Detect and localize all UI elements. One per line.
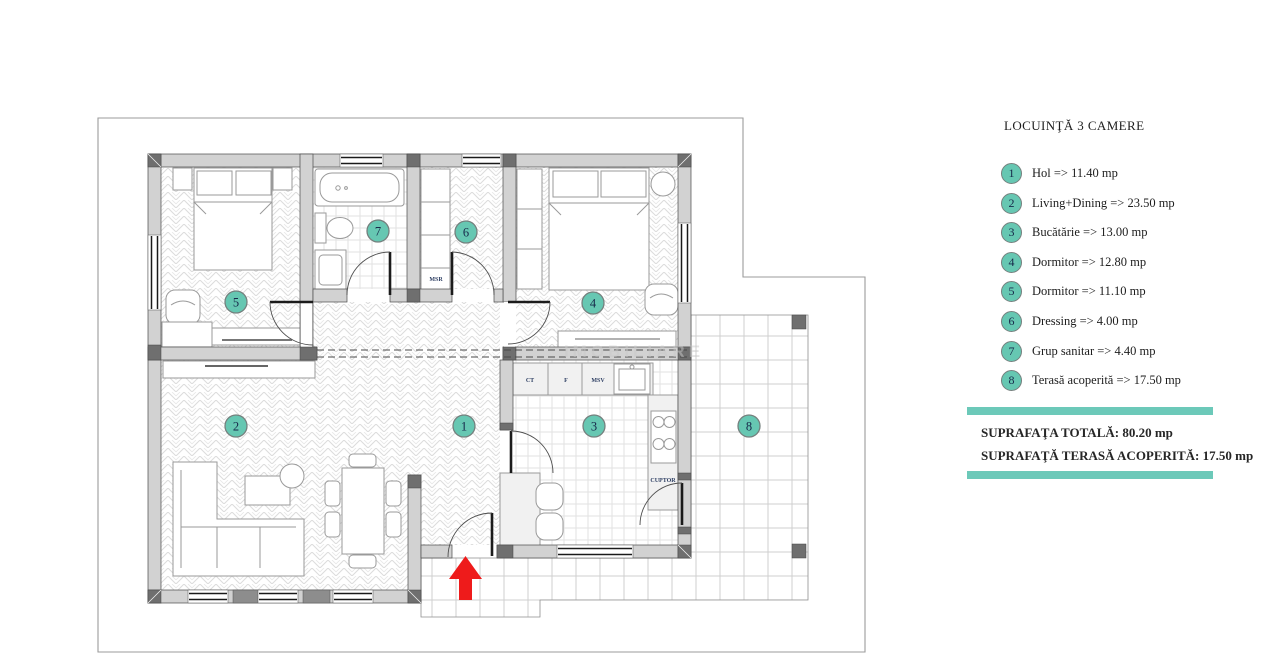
room-badge-6: 6: [455, 221, 477, 243]
chair: [349, 454, 376, 467]
wall-bath-bottom-b: [390, 289, 452, 302]
room-number-badge: 6: [1001, 311, 1022, 332]
room-number-badge: 5: [1001, 281, 1022, 302]
wardrobe: [421, 235, 450, 268]
pillow: [553, 171, 598, 197]
chair: [349, 555, 376, 568]
bar-counter: [500, 473, 540, 546]
svg-text:1: 1: [461, 420, 467, 434]
dining-table: [342, 468, 384, 554]
legend-item-label: Dressing => 4.00 mp: [1032, 314, 1138, 329]
window: [333, 590, 373, 603]
dressing-furniture: MSR: [421, 169, 450, 300]
ct-label: CT: [526, 378, 534, 384]
wall-entry-stub: [421, 545, 452, 558]
wall-bath-dressing: [407, 154, 420, 302]
armchair: [166, 290, 200, 324]
watermark: IMOBILIARE: [564, 342, 704, 361]
room-badge-8: 8: [738, 415, 760, 437]
room-number-badge: 2: [1001, 193, 1022, 214]
wall-porch: [408, 475, 421, 603]
floor-plan-page: MSR CT F MSV CUPTOR: [0, 0, 1270, 671]
window: [258, 590, 298, 603]
legend-items: 1 Hol => 11.40 mp 2 Living+Dining => 23.…: [967, 163, 1181, 400]
wall-dressing-room4: [503, 154, 516, 302]
pillow: [236, 171, 271, 195]
svg-text:2: 2: [233, 420, 239, 434]
round-table: [280, 464, 304, 488]
room-badge-3: 3: [583, 415, 605, 437]
separator-bar-bottom: [967, 471, 1213, 479]
room-number-badge: 1: [1001, 163, 1022, 184]
pillow: [601, 171, 646, 197]
open-span-floor: [317, 347, 408, 360]
chair: [386, 481, 401, 506]
legend-panel: LOCUINŢĂ 3 CAMERE 1 Hol => 11.40 mp 2 Li…: [967, 112, 1213, 492]
door-opening: [301, 302, 312, 347]
svg-text:4: 4: [590, 297, 597, 311]
svg-text:3: 3: [591, 420, 597, 434]
room-badge-7: 7: [367, 220, 389, 242]
legend-item-dormitor-5: 5 Dormitor => 11.10 mp: [967, 281, 1181, 302]
legend-item-dormitor-4: 4 Dormitor => 12.80 mp: [967, 252, 1181, 273]
terrace-pillar-bottom: [792, 544, 806, 558]
room-number-badge: 4: [1001, 252, 1022, 273]
window: [557, 545, 633, 558]
legend-item-bucatarie: 3 Bucătărie => 13.00 mp: [967, 222, 1181, 243]
wardrobe: [421, 169, 450, 202]
nightstand: [173, 168, 192, 190]
legend-item-terasa: 8 Terasă acoperită => 17.50 mp: [967, 370, 1181, 391]
legend-item-label: Bucătărie => 13.00 mp: [1032, 225, 1147, 240]
window: [462, 154, 501, 167]
legend-item-grup-sanitar: 7 Grup sanitar => 4.40 mp: [967, 341, 1181, 362]
armchair: [645, 284, 678, 315]
legend-item-hol: 1 Hol => 11.40 mp: [967, 163, 1181, 184]
wall-bath-bottom-a: [313, 289, 347, 302]
legend-item-living: 2 Living+Dining => 23.50 mp: [967, 193, 1181, 214]
svg-text:8: 8: [746, 420, 752, 434]
legend-item-label: Dormitor => 11.10 mp: [1032, 284, 1146, 299]
wall-left: [148, 154, 161, 603]
sideboard: [212, 328, 310, 345]
svg-text:6: 6: [463, 226, 469, 240]
pillow: [197, 171, 232, 195]
room-badge-5: 5: [225, 291, 247, 313]
f-label: F: [564, 378, 568, 384]
terrace-area-line: SUPRAFAŢĂ TERASĂ ACOPERITĂ: 17.50 mp: [981, 444, 1253, 467]
side-table: [651, 172, 675, 196]
window: [148, 235, 161, 310]
chair: [386, 512, 401, 537]
bar-stool: [536, 483, 563, 510]
legend-item-label: Grup sanitar => 4.40 mp: [1032, 344, 1155, 359]
window: [340, 154, 383, 167]
room-number-badge: 7: [1001, 341, 1022, 362]
legend-item-label: Hol => 11.40 mp: [1032, 166, 1118, 181]
wardrobe: [517, 169, 542, 209]
window: [188, 590, 228, 603]
totals-block: SUPRAFAŢA TOTALĂ: 80.20 mp SUPRAFAŢĂ TER…: [981, 421, 1253, 467]
room-badge-2: 2: [225, 415, 247, 437]
wall-bath-bottom-c: [494, 289, 503, 302]
terrace-pillar-top: [792, 315, 806, 329]
tv-sideboard: [163, 361, 315, 378]
cuptor-label: CUPTOR: [650, 478, 676, 484]
msr-label: MSR: [429, 277, 443, 283]
room-badge-1: 1: [453, 415, 475, 437]
total-area-line: SUPRAFAŢA TOTALĂ: 80.20 mp: [981, 421, 1253, 444]
wall-a: [148, 347, 317, 360]
bathtub: [315, 169, 404, 206]
toilet-tank: [315, 213, 326, 243]
legend-item-label: Terasă acoperită => 17.50 mp: [1032, 373, 1181, 388]
wardrobe: [517, 209, 542, 249]
svg-text:7: 7: [375, 225, 381, 239]
nightstand: [273, 168, 292, 190]
separator-bar-top: [967, 407, 1213, 415]
legend-title: LOCUINŢĂ 3 CAMERE: [1004, 118, 1144, 134]
wall-hall-kitchen: [500, 360, 513, 430]
chair: [325, 481, 340, 506]
svg-text:5: 5: [233, 296, 239, 310]
room-number-badge: 8: [1001, 370, 1022, 391]
toilet-bowl: [327, 218, 353, 239]
window: [678, 223, 691, 303]
floor-plan-drawing: MSR CT F MSV CUPTOR: [0, 0, 940, 671]
bar-stool: [536, 513, 563, 540]
room-badge-4: 4: [582, 292, 604, 314]
chair: [325, 512, 340, 537]
legend-item-label: Dormitor => 12.80 mp: [1032, 255, 1146, 270]
legend-item-dressing: 6 Dressing => 4.00 mp: [967, 311, 1181, 332]
msv-label: MSV: [591, 378, 605, 384]
room-number-badge: 3: [1001, 222, 1022, 243]
legend-item-label: Living+Dining => 23.50 mp: [1032, 196, 1175, 211]
desk: [162, 322, 212, 347]
wardrobe: [421, 202, 450, 235]
wardrobe: [517, 249, 542, 289]
door-opening: [504, 302, 515, 347]
